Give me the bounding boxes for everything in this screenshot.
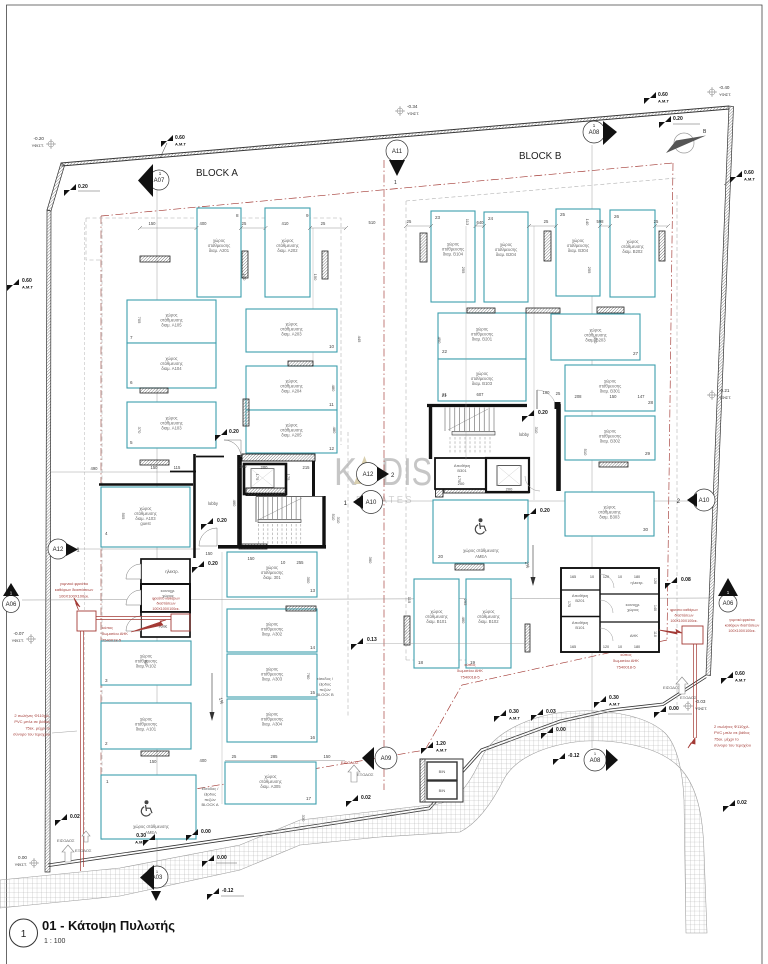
svg-text:A06: A06 [723, 601, 734, 607]
svg-text:A.M.T: A.M.T [175, 142, 186, 147]
svg-text:150: 150 [149, 221, 157, 226]
svg-text:4: 4 [105, 531, 108, 536]
svg-text:0.20: 0.20 [229, 429, 239, 435]
svg-text:8: 8 [236, 213, 239, 218]
svg-text:400: 400 [200, 758, 208, 763]
svg-text:150: 150 [242, 274, 247, 281]
svg-text:0.30: 0.30 [609, 695, 619, 701]
svg-text:10: 10 [281, 560, 286, 565]
svg-text:ΑΗΚ: ΑΗΚ [630, 633, 639, 638]
svg-text:25: 25 [544, 219, 549, 224]
svg-text:115: 115 [407, 597, 412, 604]
svg-text:0.60: 0.60 [735, 671, 745, 677]
svg-text:0.08: 0.08 [681, 577, 691, 583]
svg-text:480: 480 [332, 427, 337, 434]
svg-text:0.00: 0.00 [201, 829, 211, 835]
svg-text:ΕΙΣΟΔΟΣ: ΕΙΣΟΔΟΣ [663, 685, 681, 690]
svg-text:A12: A12 [363, 472, 374, 478]
svg-text:490: 490 [437, 337, 442, 344]
svg-text:A08: A08 [589, 130, 600, 136]
svg-text:A06: A06 [6, 602, 17, 608]
svg-text:0.20: 0.20 [208, 561, 218, 567]
svg-text:ΑΜΕΑ: ΑΜΕΑ [145, 830, 157, 835]
svg-text:27: 27 [633, 351, 639, 356]
svg-text:B301: B301 [457, 468, 467, 473]
svg-text:7: 7 [130, 335, 133, 340]
svg-text:25: 25 [654, 219, 659, 224]
svg-text:705: 705 [137, 317, 142, 324]
svg-text:11: 11 [329, 402, 334, 407]
svg-text:295: 295 [463, 599, 468, 606]
svg-text:25: 25 [556, 391, 561, 396]
svg-text:-0.03: -0.03 [695, 699, 706, 704]
svg-text:-0.21: -0.21 [719, 388, 730, 393]
svg-text:22: 22 [442, 349, 448, 354]
svg-text:0.30: 0.30 [509, 709, 519, 715]
svg-text:29: 29 [645, 451, 651, 456]
svg-text:ΥΦΙΣΤ.: ΥΦΙΣΤ. [12, 638, 24, 643]
svg-text:1 : 100: 1 : 100 [44, 938, 66, 945]
svg-text:-0.34: -0.34 [407, 104, 418, 109]
svg-text:255: 255 [297, 560, 305, 565]
svg-text:B201: B201 [575, 598, 585, 603]
svg-text:150: 150 [150, 759, 158, 764]
svg-text:30: 30 [643, 527, 649, 532]
svg-text:25: 25 [232, 754, 237, 759]
svg-text:1: 1 [106, 779, 109, 784]
svg-text:460: 460 [232, 500, 237, 507]
svg-text:-0.12: -0.12 [222, 888, 234, 894]
svg-text:175: 175 [286, 474, 291, 481]
svg-text:25: 25 [321, 221, 326, 226]
svg-text:23: 23 [435, 215, 441, 220]
svg-text:DIS: DIS [381, 451, 432, 494]
svg-text:310: 310 [534, 427, 539, 434]
svg-text:χώρος στάθμευσης: χώρος στάθμευσης [133, 824, 169, 829]
svg-text:έξοδος: έξοδος [319, 681, 331, 686]
svg-text:15: 15 [310, 690, 316, 695]
svg-text:165: 165 [570, 575, 576, 579]
svg-text:είσοδος /: είσοδος / [317, 676, 334, 681]
svg-text:460: 460 [461, 617, 466, 624]
svg-text:28: 28 [648, 400, 654, 405]
svg-text:20: 20 [438, 554, 444, 559]
svg-text:Είσοδος /: Είσοδος / [202, 786, 220, 791]
svg-text:370: 370 [137, 427, 142, 434]
svg-text:180: 180 [634, 645, 640, 649]
svg-text:A.M.T: A.M.T [658, 99, 669, 104]
svg-text:0.02: 0.02 [361, 795, 371, 801]
svg-text:17: 17 [306, 796, 312, 801]
svg-text:16: 16 [310, 735, 316, 740]
svg-text:ΥΦΙΣΤ.: ΥΦΙΣΤ. [719, 395, 731, 400]
svg-text:1: 1 [21, 929, 27, 940]
svg-text:-0.12: -0.12 [568, 753, 580, 759]
svg-text:140: 140 [653, 605, 657, 611]
svg-text:6: 6 [130, 380, 133, 385]
svg-text:χώρος: χώρος [627, 607, 639, 612]
svg-text:A.M.T: A.M.T [509, 716, 520, 721]
svg-text:150: 150 [324, 754, 332, 759]
svg-text:A.M.T: A.M.T [135, 840, 146, 845]
svg-text:607: 607 [477, 392, 485, 397]
svg-text:lobby: lobby [208, 501, 219, 506]
svg-text:285: 285 [271, 754, 279, 759]
svg-text:480: 480 [331, 385, 336, 392]
svg-text:180: 180 [634, 575, 640, 579]
svg-text:0.60: 0.60 [658, 92, 668, 98]
svg-text:0.60: 0.60 [744, 170, 754, 176]
svg-text:490: 490 [593, 337, 598, 344]
svg-text:147: 147 [638, 394, 646, 399]
svg-text:10: 10 [618, 645, 622, 649]
svg-text:1: 1 [394, 180, 397, 186]
svg-text:0.13: 0.13 [367, 637, 377, 643]
svg-text:150: 150 [248, 556, 256, 561]
svg-text:208: 208 [575, 394, 583, 399]
svg-text:200: 200 [261, 465, 269, 470]
svg-text:-0.20: -0.20 [34, 136, 45, 141]
svg-text:A08: A08 [590, 758, 601, 764]
svg-text:0.02: 0.02 [737, 800, 747, 806]
svg-text:A09: A09 [381, 756, 392, 762]
svg-text:ηλεκτρ.: ηλεκτρ. [165, 569, 179, 574]
svg-text:100: 100 [543, 390, 551, 395]
svg-text:ΕΙΣΟΔΟΣ: ΕΙΣΟΔΟΣ [57, 838, 75, 843]
svg-text:A07: A07 [154, 178, 165, 184]
svg-text:BIN: BIN [439, 788, 446, 793]
svg-text:175: 175 [567, 601, 571, 607]
svg-text:BLOCK A: BLOCK A [196, 168, 238, 179]
svg-text:360: 360 [368, 557, 373, 564]
svg-text:10: 10 [590, 575, 594, 579]
svg-text:300: 300 [306, 577, 311, 584]
svg-text:13: 13 [310, 588, 316, 593]
svg-text:BLOCK A: BLOCK A [201, 802, 218, 807]
svg-text:12: 12 [329, 446, 335, 451]
svg-text:150: 150 [610, 394, 618, 399]
svg-text:175: 175 [255, 474, 260, 481]
svg-text:A10: A10 [699, 498, 710, 504]
svg-text:200: 200 [506, 487, 513, 492]
svg-text:A10: A10 [366, 500, 377, 506]
svg-text:ηλεκτρ.: ηλεκτρ. [631, 580, 644, 585]
svg-text:150: 150 [151, 465, 159, 470]
svg-text:3: 3 [105, 678, 108, 683]
svg-text:01 - Κάτοψη Πυλωτής: 01 - Κάτοψη Πυλωτής [42, 918, 175, 933]
svg-text:A.M.T: A.M.T [609, 702, 620, 707]
svg-text:A.M.T: A.M.T [744, 177, 755, 182]
svg-text:445: 445 [357, 336, 362, 343]
svg-text:760: 760 [306, 673, 311, 680]
svg-text:0.00: 0.00 [556, 727, 566, 733]
svg-text:ΥΦΙΣΤ.: ΥΦΙΣΤ. [719, 92, 731, 97]
svg-text:ΥΦΙΣΤ.: ΥΦΙΣΤ. [695, 706, 707, 711]
svg-text:ΕΞΟΔΟΣ: ΕΞΟΔΟΣ [357, 772, 374, 777]
svg-text:1: 1 [77, 548, 80, 554]
svg-text:115: 115 [174, 465, 181, 470]
svg-text:25: 25 [242, 221, 247, 226]
svg-text:120: 120 [653, 578, 657, 584]
svg-text:0.20: 0.20 [78, 184, 88, 190]
svg-text:410: 410 [282, 221, 290, 226]
svg-text:A03: A03 [152, 875, 163, 881]
svg-text:510: 510 [369, 220, 377, 225]
svg-text:120: 120 [603, 575, 609, 579]
svg-text:ΑΜΕΑ: ΑΜΕΑ [475, 554, 487, 559]
svg-text:πεζών: πεζών [319, 687, 330, 692]
svg-text:έξοδος: έξοδος [204, 791, 216, 796]
svg-text:21: 21 [442, 393, 447, 398]
svg-text:150: 150 [313, 274, 318, 281]
svg-text:0.60: 0.60 [175, 135, 185, 141]
svg-text:140: 140 [585, 219, 590, 226]
svg-text:0.20: 0.20 [673, 116, 683, 122]
svg-text:10: 10 [618, 575, 622, 579]
svg-text:B101: B101 [575, 625, 585, 630]
svg-text:A.M.T: A.M.T [436, 748, 447, 753]
svg-text:510: 510 [583, 449, 588, 456]
svg-text:πεζών: πεζών [204, 797, 215, 802]
svg-text:ΥΦΙΣΤ.: ΥΦΙΣΤ. [407, 111, 419, 116]
svg-text:0.30: 0.30 [136, 833, 146, 839]
svg-text:14: 14 [310, 645, 316, 650]
svg-text:BIN: BIN [439, 769, 446, 774]
svg-text:610: 610 [144, 660, 149, 667]
svg-text:BLOCK B: BLOCK B [519, 151, 562, 162]
svg-text:175: 175 [457, 476, 462, 483]
svg-text:2: 2 [105, 741, 108, 746]
svg-text:400: 400 [200, 221, 208, 226]
svg-text:0.03: 0.03 [546, 709, 556, 715]
svg-text:ΕΙΣΟΔΟΣ: ΕΙΣΟΔΟΣ [341, 760, 359, 765]
svg-text:A12: A12 [53, 547, 64, 553]
svg-text:0.00: 0.00 [18, 855, 27, 860]
svg-text:215: 215 [303, 465, 311, 470]
svg-text:K: K [334, 451, 357, 494]
svg-text:10: 10 [329, 344, 335, 349]
svg-text:0.20: 0.20 [538, 410, 548, 416]
svg-text:1.20: 1.20 [436, 741, 446, 747]
svg-text:490: 490 [91, 466, 99, 471]
svg-text:-0.07: -0.07 [14, 631, 25, 636]
svg-text:25: 25 [560, 212, 566, 217]
svg-text:0.60: 0.60 [22, 278, 32, 284]
svg-text:ΕΞΟΔΟΣ: ΕΞΟΔΟΣ [75, 848, 92, 853]
svg-text:110: 110 [653, 631, 657, 637]
svg-text:ΥΦΙΣΤ.: ΥΦΙΣΤ. [32, 143, 44, 148]
svg-text:9: 9 [306, 213, 309, 218]
svg-text:113: 113 [465, 219, 470, 226]
svg-text:-0.40: -0.40 [719, 85, 730, 90]
svg-text:18: 18 [418, 660, 424, 665]
svg-text:255: 255 [461, 267, 466, 274]
svg-text:310: 310 [336, 517, 341, 524]
svg-text:510: 510 [331, 514, 336, 521]
svg-text:lobby: lobby [519, 432, 530, 437]
svg-text:598: 598 [597, 219, 605, 224]
svg-text:0.00: 0.00 [217, 855, 227, 861]
svg-text:260: 260 [240, 464, 248, 469]
svg-text:A.M.T: A.M.T [735, 678, 746, 683]
svg-text:26: 26 [614, 214, 620, 219]
svg-text:0.02: 0.02 [70, 814, 80, 820]
svg-text:0.00: 0.00 [669, 706, 679, 712]
svg-text:640: 640 [477, 220, 485, 225]
svg-text:165: 165 [570, 645, 576, 649]
svg-text:A11: A11 [392, 149, 403, 155]
svg-text:255: 255 [587, 267, 592, 274]
svg-text:120: 120 [603, 645, 609, 649]
svg-text:γυμνικό φρεάτιοκαθάρων διαστάσ: γυμνικό φρεάτιοκαθάρων διαστάσεων100Χ100… [725, 618, 760, 633]
svg-text:ΥΦΙΣΤ.: ΥΦΙΣΤ. [15, 862, 27, 867]
svg-text:A.M.T: A.M.T [22, 285, 33, 290]
svg-text:0.20: 0.20 [217, 518, 227, 524]
svg-text:505: 505 [121, 513, 126, 520]
svg-text:5: 5 [130, 440, 133, 445]
svg-text:25: 25 [407, 219, 412, 224]
svg-text:150: 150 [206, 551, 214, 556]
svg-text:γυμνικό φρεάτιοκαθάρων διαστάσ: γυμνικό φρεάτιοκαθάρων διαστάσεων100Χ100… [55, 581, 93, 598]
svg-text:χώρος στάθμευσης: χώρος στάθμευσης [463, 548, 499, 553]
svg-text:330: 330 [301, 815, 306, 822]
svg-text:24: 24 [488, 216, 494, 221]
svg-text:BLOCK B: BLOCK B [316, 692, 334, 697]
svg-text:0.20: 0.20 [540, 508, 550, 514]
